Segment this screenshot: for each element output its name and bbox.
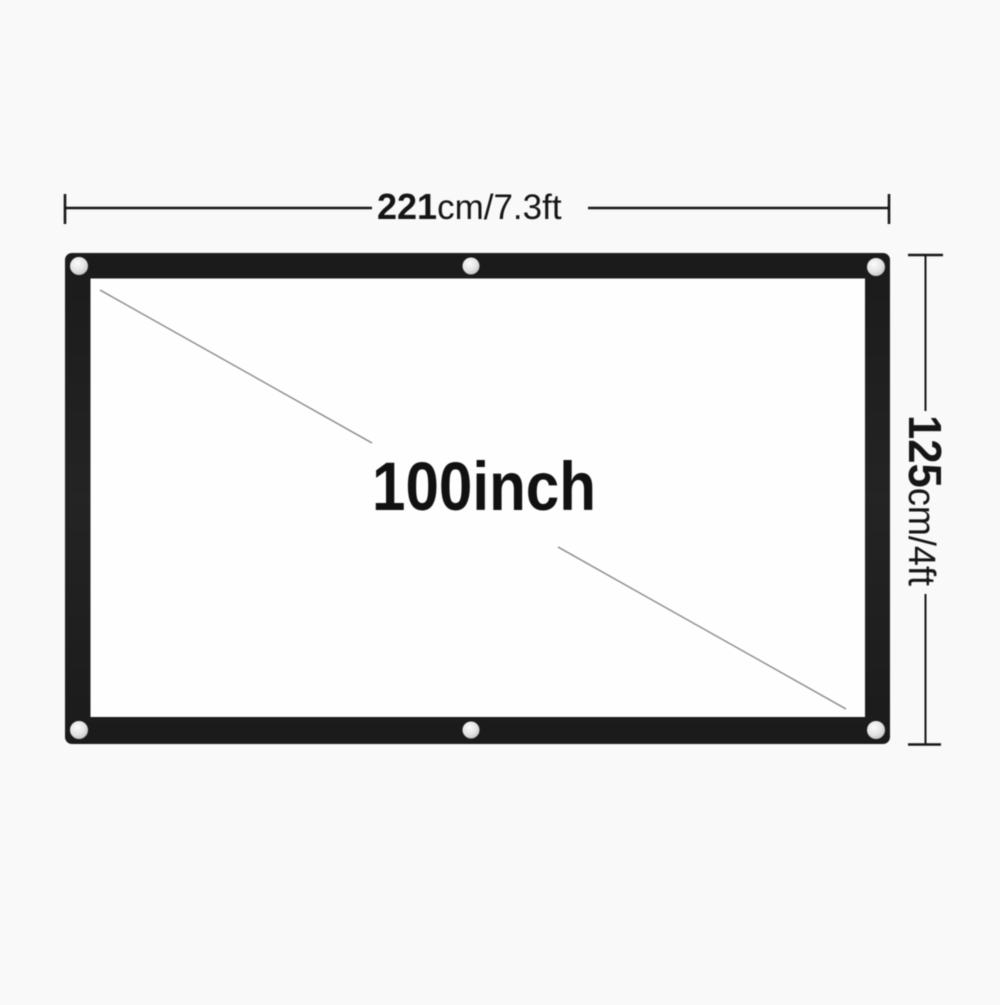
svg-text:100inch: 100inch [372, 448, 596, 525]
svg-text:221cm/7.3ft: 221cm/7.3ft [377, 186, 562, 227]
